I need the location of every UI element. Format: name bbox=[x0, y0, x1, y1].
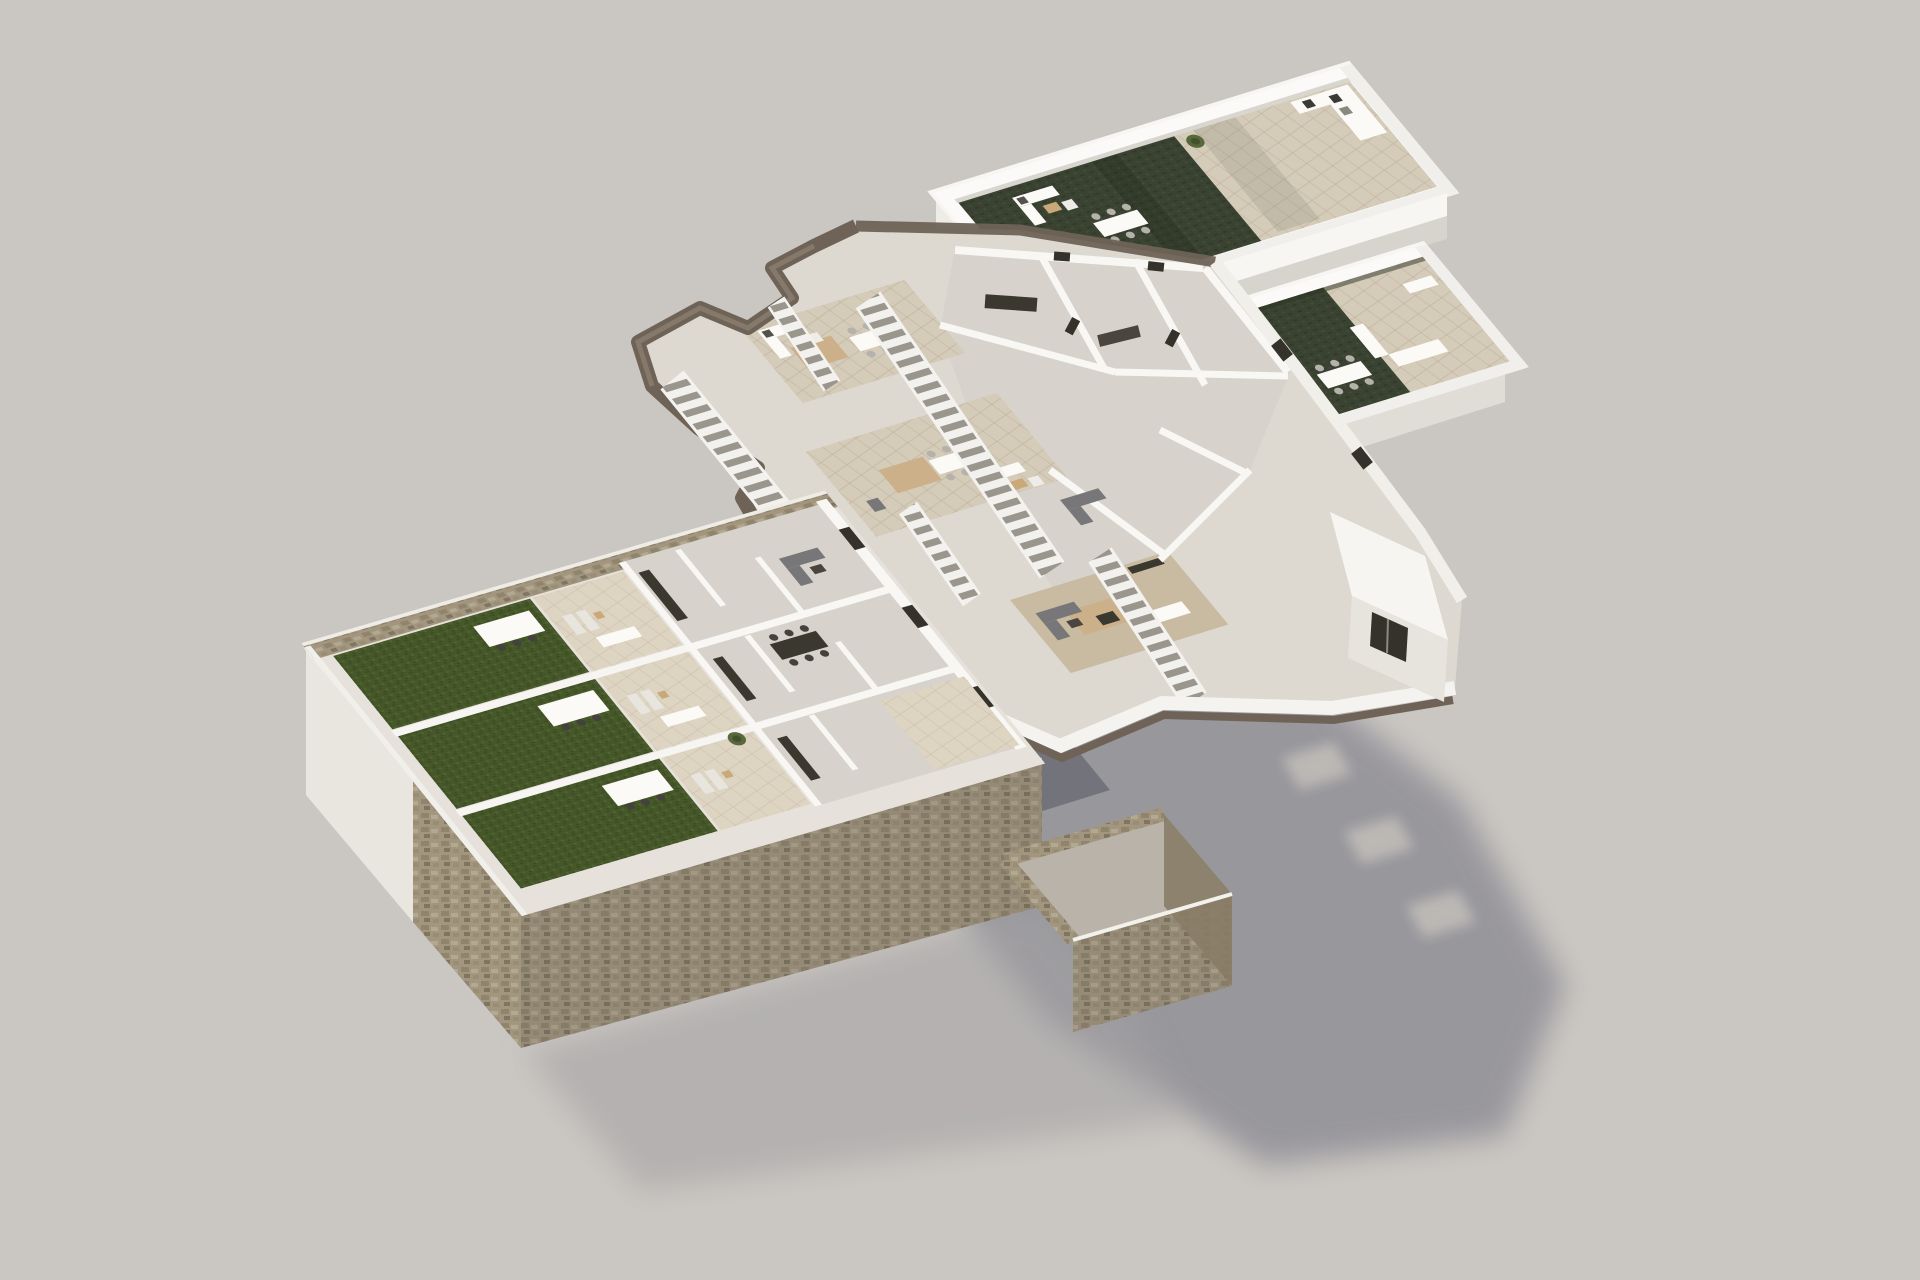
architectural-render bbox=[0, 0, 1920, 1280]
detail-shape bbox=[1148, 261, 1165, 272]
detail-shape bbox=[1054, 251, 1071, 261]
detail-shape bbox=[1115, 372, 1288, 376]
render-stage: { "scene": { "type": "3d-exploded-axonom… bbox=[0, 0, 1920, 1280]
detail-shape bbox=[1387, 619, 1388, 653]
